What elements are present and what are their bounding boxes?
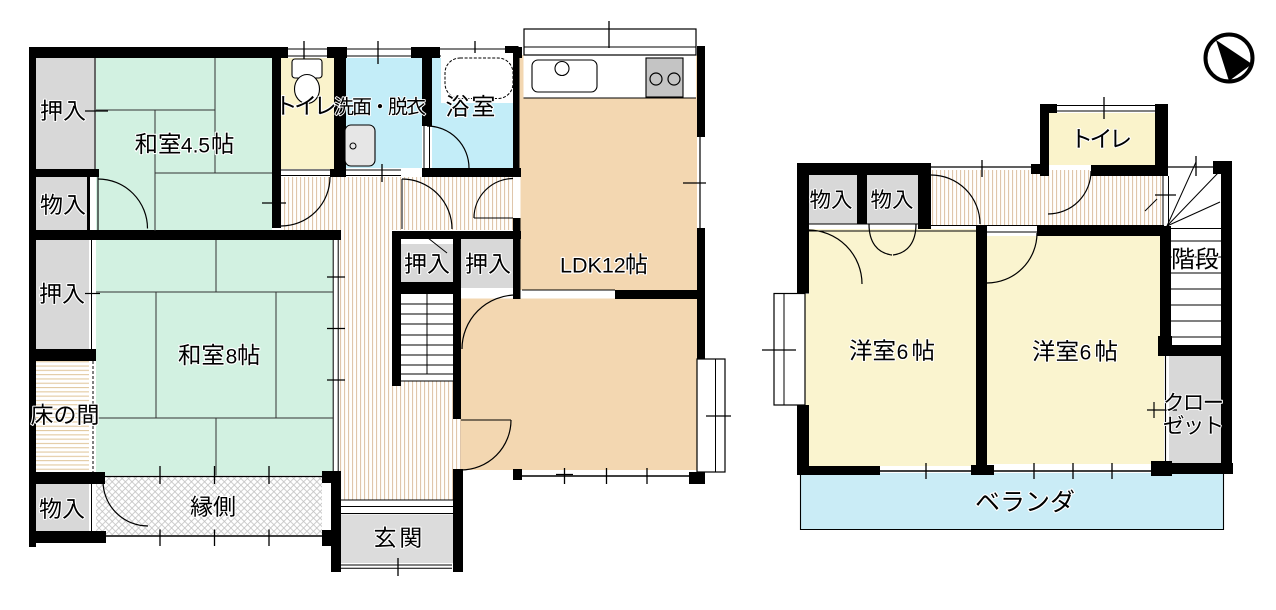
svg-text:8: 8 xyxy=(226,345,238,368)
svg-text:6: 6 xyxy=(897,341,909,364)
svg-text:6: 6 xyxy=(1080,342,1092,365)
svg-text:LDK12: LDK12 xyxy=(560,254,626,278)
svg-text:4.5: 4.5 xyxy=(181,134,210,157)
